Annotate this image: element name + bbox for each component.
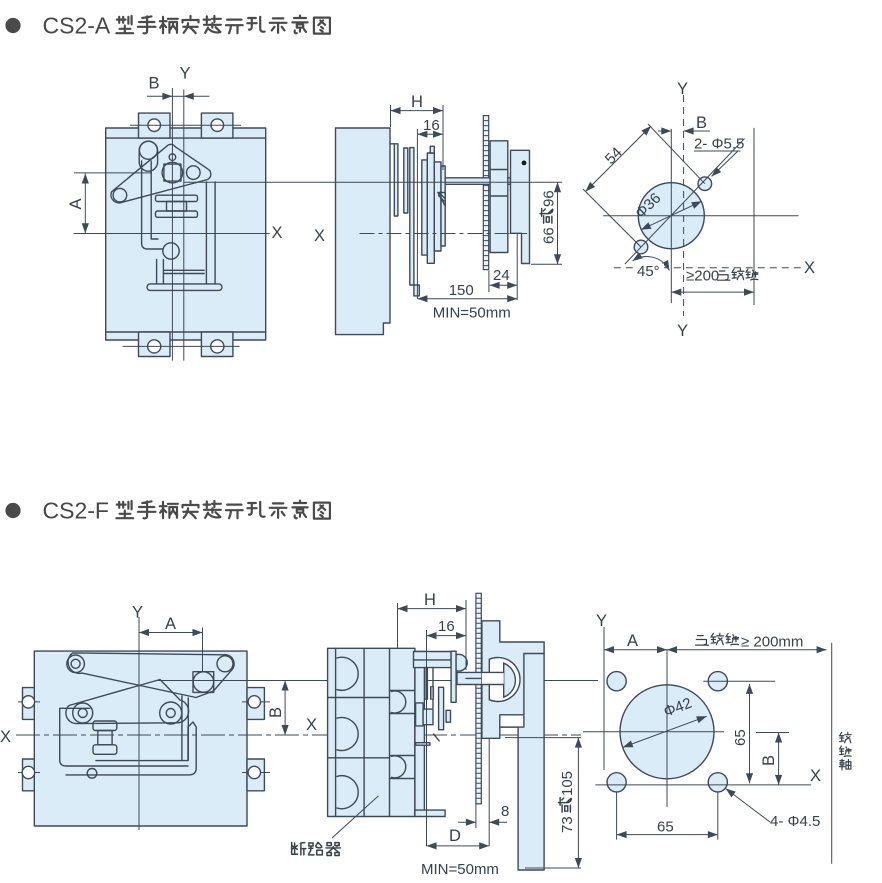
- svg-text:4- Φ4.5: 4- Φ4.5: [770, 813, 820, 830]
- svg-text:B: B: [149, 75, 160, 93]
- svg-text:H: H: [411, 93, 423, 111]
- svg-text:X: X: [0, 728, 11, 746]
- svg-text:B: B: [760, 755, 778, 766]
- svg-text:X: X: [314, 227, 325, 245]
- svg-text:24: 24: [493, 267, 510, 284]
- svg-text:8: 8: [501, 803, 509, 820]
- svg-text:73: 73: [559, 816, 576, 833]
- svg-text:54: 54: [602, 144, 626, 168]
- svg-text:65: 65: [657, 819, 674, 836]
- svg-text:≥ 200mm: ≥ 200mm: [741, 634, 803, 651]
- svg-text:CS2-F: CS2-F: [43, 497, 109, 523]
- svg-text:96: 96: [541, 190, 558, 207]
- svg-text:X: X: [306, 716, 317, 734]
- svg-text:A: A: [627, 632, 638, 650]
- svg-text:66: 66: [541, 227, 558, 244]
- svg-text:D: D: [449, 827, 461, 845]
- svg-text:65: 65: [732, 729, 749, 746]
- svg-text:X: X: [272, 224, 283, 242]
- svg-text:CS2-A: CS2-A: [43, 12, 111, 38]
- svg-text:≥200: ≥200: [686, 268, 719, 285]
- svg-text:MIN=50mm: MIN=50mm: [433, 304, 511, 321]
- svg-text:Y: Y: [180, 65, 191, 83]
- svg-text:MIN=50mm: MIN=50mm: [421, 861, 499, 878]
- svg-text:105: 105: [559, 771, 576, 796]
- svg-text:B: B: [696, 114, 707, 132]
- svg-text:X: X: [804, 259, 815, 277]
- svg-text:B: B: [267, 707, 285, 718]
- svg-text:Y: Y: [677, 80, 688, 98]
- svg-text:X: X: [810, 767, 821, 785]
- svg-text:150: 150: [449, 282, 474, 299]
- svg-text:Y: Y: [596, 612, 607, 630]
- svg-text:A: A: [67, 198, 85, 209]
- svg-text:2- Φ5.5: 2- Φ5.5: [694, 136, 744, 153]
- svg-text:16: 16: [438, 618, 455, 635]
- svg-text:A: A: [165, 615, 176, 633]
- svg-text:16: 16: [423, 117, 440, 134]
- svg-text:H: H: [424, 591, 436, 609]
- svg-text:Y: Y: [132, 604, 143, 622]
- svg-text:Y: Y: [677, 322, 688, 340]
- svg-text:45°: 45°: [637, 263, 660, 280]
